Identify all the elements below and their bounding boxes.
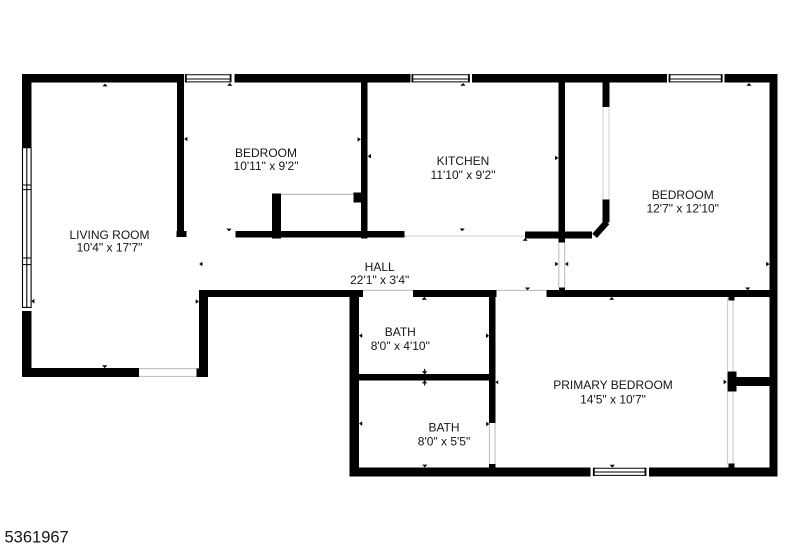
svg-text:11'10" x 9'2": 11'10" x 9'2" [431,168,496,182]
svg-text:10'11" x 9'2": 10'11" x 9'2" [234,159,299,173]
svg-text:14'5" x 10'7": 14'5" x 10'7" [580,392,646,406]
svg-text:BEDROOM: BEDROOM [652,188,714,202]
svg-text:BATH: BATH [428,420,459,434]
svg-text:KITCHEN: KITCHEN [437,154,490,168]
svg-text:HALL: HALL [365,260,395,274]
svg-text:12'7" x 12'10": 12'7" x 12'10" [646,202,719,216]
svg-text:10'4" x 17'7": 10'4" x 17'7" [77,240,143,254]
svg-text:22'1" x 3'4": 22'1" x 3'4" [350,273,409,287]
svg-text:BEDROOM: BEDROOM [235,146,297,160]
svg-text:8'0" x 4'10": 8'0" x 4'10" [371,339,430,353]
svg-text:8'0" x 5'5": 8'0" x 5'5" [418,434,470,448]
svg-text:BATH: BATH [385,325,416,339]
svg-text:PRIMARY BEDROOM: PRIMARY BEDROOM [553,378,673,392]
svg-text:5361967: 5361967 [5,529,69,547]
